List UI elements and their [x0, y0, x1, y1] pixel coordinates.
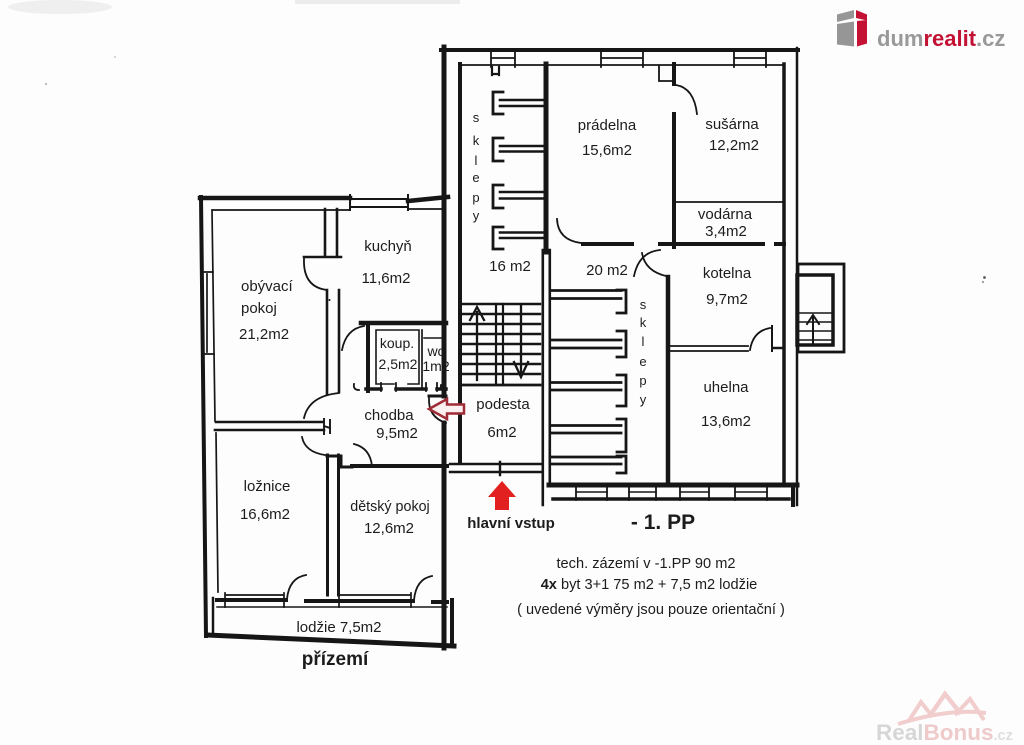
svg-text:l: l	[642, 334, 645, 349]
svg-text:lodžie 7,5m2: lodžie 7,5m2	[296, 619, 381, 636]
svg-text:3,4m2: 3,4m2	[705, 223, 747, 240]
svg-text:koup.: koup.	[380, 335, 414, 351]
svg-text:sušárna: sušárna	[705, 116, 759, 133]
svg-text:vodárna: vodárna	[698, 206, 753, 223]
svg-text:tech. zázemí v -1.PP 90 m2: tech. zázemí v -1.PP 90 m2	[557, 556, 736, 572]
svg-text:12,2m2: 12,2m2	[709, 137, 759, 154]
svg-text:13,6m2: 13,6m2	[701, 413, 751, 430]
svg-text:- 1. PP: - 1. PP	[631, 511, 695, 534]
svg-text:k: k	[473, 133, 480, 148]
svg-text:podesta: podesta	[476, 396, 530, 413]
svg-text:9,7m2: 9,7m2	[706, 291, 748, 308]
svg-text:9,5m2: 9,5m2	[376, 425, 418, 442]
svg-text:ložnice: ložnice	[244, 478, 291, 495]
svg-text:21,2m2: 21,2m2	[239, 326, 289, 343]
svg-text:dětský pokoj: dětský pokoj	[350, 499, 429, 515]
svg-text:kotelna: kotelna	[703, 265, 752, 282]
svg-text:y: y	[473, 208, 480, 223]
svg-text:kuchyň: kuchyň	[364, 238, 412, 255]
svg-text:20 m2: 20 m2	[586, 262, 628, 279]
svg-text:4x byt 3+1 75 m2 + 7,5 m2 lodž: 4x byt 3+1 75 m2 + 7,5 m2 lodžie	[541, 577, 758, 593]
svg-text:přízemí: přízemí	[302, 649, 369, 670]
svg-text:l: l	[475, 153, 478, 168]
svg-text:( uvedené výměry jsou pouze or: ( uvedené výměry jsou pouze orientační )	[517, 602, 785, 618]
svg-text:uhelna: uhelna	[703, 379, 749, 396]
svg-text:dumrealit.cz: dumrealit.cz	[877, 26, 1005, 51]
svg-text:e: e	[639, 354, 646, 369]
svg-text:12,6m2: 12,6m2	[364, 520, 414, 537]
svg-text:k: k	[640, 315, 647, 330]
svg-text:RealBonus.cz: RealBonus.cz	[876, 720, 1013, 745]
svg-text:15,6m2: 15,6m2	[582, 142, 632, 159]
svg-text:p: p	[472, 190, 479, 205]
svg-text:16,6m2: 16,6m2	[240, 506, 290, 523]
svg-text:s: s	[640, 297, 647, 312]
svg-text:pokoj: pokoj	[241, 300, 277, 317]
svg-text:hlavní vstup: hlavní vstup	[467, 515, 555, 532]
svg-text:prádelna: prádelna	[578, 117, 637, 134]
svg-text:6m2: 6m2	[487, 424, 516, 441]
svg-text:p: p	[639, 373, 646, 388]
svg-text:1m2: 1m2	[422, 358, 449, 374]
svg-text:wc: wc	[426, 343, 444, 359]
svg-text:y: y	[640, 392, 647, 407]
svg-text:11,6m2: 11,6m2	[362, 270, 411, 287]
svg-text:s: s	[473, 110, 480, 125]
svg-text:16 m2: 16 m2	[489, 258, 531, 275]
svg-text:obývací: obývací	[241, 278, 294, 295]
svg-text:e: e	[472, 170, 479, 185]
svg-text:chodba: chodba	[364, 407, 414, 424]
svg-text:2,5m2: 2,5m2	[379, 356, 418, 372]
